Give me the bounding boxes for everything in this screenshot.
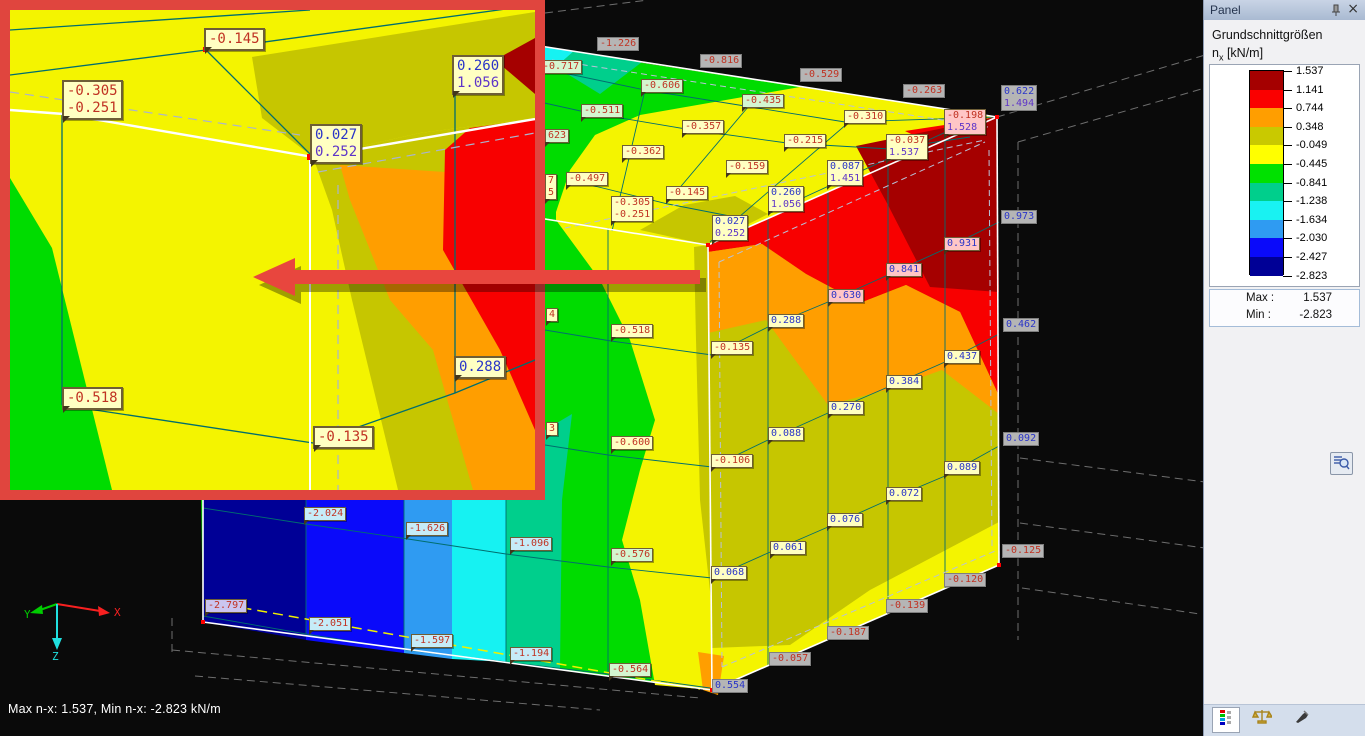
legend-value: -0.445 bbox=[1296, 158, 1327, 170]
min-label: Min : bbox=[1246, 307, 1286, 324]
details-magnifier-icon bbox=[1332, 453, 1351, 472]
legend-color-cell bbox=[1250, 71, 1283, 90]
legend-tick bbox=[1283, 90, 1292, 91]
pin-icon[interactable] bbox=[1327, 3, 1341, 17]
max-value: 1.537 bbox=[1286, 290, 1332, 307]
legend-value: -2.823 bbox=[1296, 270, 1327, 282]
zoom-inset-scene bbox=[10, 10, 535, 490]
legend-tick bbox=[1283, 220, 1292, 221]
legend-color-cell bbox=[1250, 90, 1283, 109]
legend-value: 1.537 bbox=[1296, 65, 1324, 77]
status-bar: Max n-x: 1.537, Min n-x: -2.823 kN/m bbox=[8, 702, 221, 716]
3d-viewport[interactable]: X Y Z -1.226-0.816-0.529-0.2630.6221.494… bbox=[0, 0, 1203, 736]
panel-title: Panel bbox=[1210, 3, 1241, 17]
legend-color-cell bbox=[1250, 145, 1283, 164]
rfem-window: X Y Z -1.226-0.816-0.529-0.2630.6221.494… bbox=[0, 0, 1365, 736]
legend-tick bbox=[1283, 164, 1292, 165]
scales-icon bbox=[1252, 707, 1272, 725]
color-legend: 1.5371.1410.7440.348-0.049-0.445-0.841-1… bbox=[1209, 64, 1360, 287]
legend-value: -0.841 bbox=[1296, 177, 1327, 189]
legend-details-button[interactable] bbox=[1330, 452, 1353, 475]
tool-icon bbox=[1293, 707, 1311, 725]
legend-color-cell bbox=[1250, 164, 1283, 183]
quantity-label: nx [kN/m] bbox=[1212, 46, 1263, 63]
panel-titlebar[interactable]: Panel × bbox=[1204, 0, 1365, 21]
legend-value: 0.744 bbox=[1296, 102, 1324, 114]
max-label: Max : bbox=[1246, 290, 1286, 307]
panel-body: Grundschnittgrößen nx [kN/m] 1.5371.1410… bbox=[1204, 20, 1365, 736]
tab-factors[interactable] bbox=[1248, 707, 1276, 733]
tab-color-scale[interactable] bbox=[1212, 707, 1240, 733]
legend-tick bbox=[1283, 145, 1292, 146]
zoom-inset: -0.145-0.305-0.2510.2601.0560.0270.252-0… bbox=[0, 0, 545, 500]
axis-y-label: Y bbox=[24, 608, 31, 621]
legend-value: -2.030 bbox=[1296, 232, 1327, 244]
panel-section-title: Grundschnittgrößen bbox=[1212, 28, 1322, 42]
axis-x-label: X bbox=[114, 606, 121, 619]
legend-tick bbox=[1283, 238, 1292, 239]
min-value: -2.823 bbox=[1286, 307, 1332, 324]
close-icon[interactable]: × bbox=[1347, 1, 1359, 17]
legend-value: -2.427 bbox=[1296, 251, 1327, 263]
legend-color-cell bbox=[1250, 127, 1283, 146]
legend-color-cell bbox=[1250, 220, 1283, 239]
legend-value: 1.141 bbox=[1296, 84, 1324, 96]
color-scale-icon bbox=[1217, 708, 1235, 726]
legend-tick bbox=[1283, 71, 1292, 72]
legend-tick bbox=[1283, 276, 1292, 277]
legend-tick bbox=[1283, 108, 1292, 109]
legend-value: -1.634 bbox=[1296, 214, 1327, 226]
maxmin-summary: Max :1.537 Min :-2.823 bbox=[1209, 289, 1360, 327]
legend-color-cell bbox=[1250, 201, 1283, 220]
legend-tick bbox=[1283, 183, 1292, 184]
legend-color-cell bbox=[1250, 257, 1283, 276]
legend-tick bbox=[1283, 201, 1292, 202]
legend-tick bbox=[1283, 257, 1292, 258]
tab-filter[interactable] bbox=[1288, 707, 1316, 733]
axis-z-label: Z bbox=[52, 650, 59, 663]
legend-color-cell bbox=[1250, 183, 1283, 202]
legend-color-cell bbox=[1250, 108, 1283, 127]
legend-color-cell bbox=[1250, 238, 1283, 257]
legend-value: 0.348 bbox=[1296, 121, 1324, 133]
legend-value: -0.049 bbox=[1296, 139, 1327, 151]
panel-tab-bar bbox=[1204, 704, 1365, 736]
results-panel: Panel × Grundschnittgrößen nx [kN/m] 1.5… bbox=[1203, 0, 1365, 736]
legend-tick bbox=[1283, 127, 1292, 128]
legend-value: -1.238 bbox=[1296, 195, 1327, 207]
